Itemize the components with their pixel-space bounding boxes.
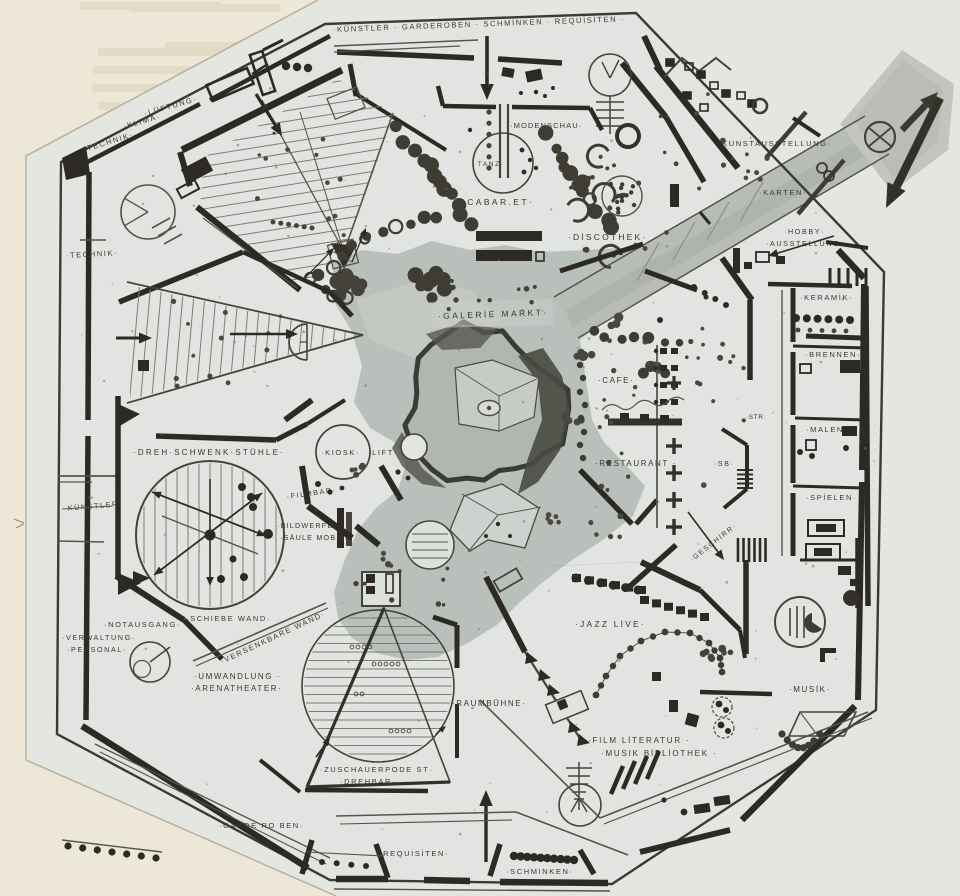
svg-text:·KARTEN·: ·KARTEN·	[759, 188, 807, 197]
svg-text:·KIOSK·: ·KIOSK·	[321, 448, 360, 457]
svg-text:·KUNSTAUSSTELLUNG·: ·KUNSTAUSSTELLUNG·	[718, 139, 832, 148]
svg-text:·HOBBY·: ·HOBBY·	[784, 227, 825, 236]
svg-text:·MALEN·: ·MALEN·	[806, 425, 848, 434]
svg-text:·ZUSCHAUERPODE ST·: ·ZUSCHAUERPODE ST·	[320, 765, 433, 774]
svg-text:·FILM LİTERATUR ·: ·FILM LİTERATUR ·	[588, 736, 690, 745]
svg-text:·DREH·SCHWENK·STÜHLE·: ·DREH·SCHWENK·STÜHLE·	[133, 448, 285, 457]
svg-text:·DREHBAR·: ·DREHBAR·	[340, 777, 396, 786]
svg-text:·VERWALTUNG·: ·VERWALTUNG·	[62, 633, 136, 642]
svg-text:·SCHMINKEN·: ·SCHMINKEN·	[506, 867, 574, 876]
svg-text:·SB·: ·SB·	[714, 461, 734, 468]
svg-text:·SPİELEN·: ·SPİELEN·	[806, 493, 857, 502]
svg-text:·GARDE RO BEN·: ·GARDE RO BEN·	[219, 821, 304, 830]
svg-text:·NOTAUSGANG·: ·NOTAUSGANG·	[104, 620, 181, 629]
svg-text:·DİSCOTHEK·: ·DİSCOTHEK·	[568, 232, 647, 242]
svg-text:·SCHIEBE WAND·: ·SCHIEBE WAND·	[186, 614, 271, 623]
svg-text:·CABAR.ET·: ·CABAR.ET·	[462, 197, 534, 207]
svg-text:·JAZZ LİVE·: ·JAZZ LİVE·	[575, 619, 646, 629]
svg-text:·PERSONAL·: ·PERSONAL·	[67, 645, 127, 654]
svg-text:·TANZ·: ·TANZ·	[474, 161, 504, 168]
svg-text:·RAUMBÜHNE·: ·RAUMBÜHNE·	[452, 699, 527, 708]
svg-text:·KERAMİK·: ·KERAMİK·	[800, 293, 853, 302]
svg-text:·SÄULE MOBIL·: ·SÄULE MOBIL·	[280, 533, 348, 542]
svg-text:·BRENNEN·: ·BRENNEN·	[805, 350, 861, 359]
svg-text:·ARENATHEATER·: ·ARENATHEATER·	[191, 684, 282, 693]
svg-text:·STR·: ·STR·	[746, 414, 767, 421]
svg-text:·REQUISİTEN·: ·REQUISİTEN·	[379, 849, 449, 858]
svg-text:·CAFE·: ·CAFE·	[598, 376, 634, 385]
svg-text:·LIFT·: ·LIFT·	[368, 448, 398, 457]
svg-text:·MUSİK·: ·MUSİK·	[789, 685, 831, 694]
